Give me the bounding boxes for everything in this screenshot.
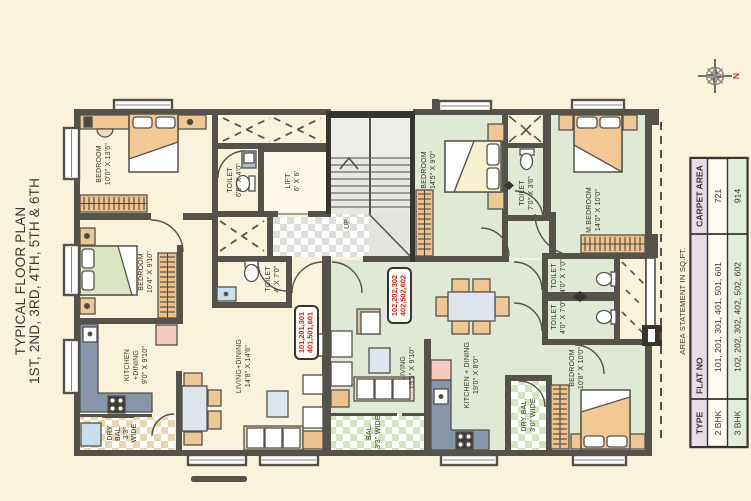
svg-text:AREA STATEMENT IN SQ.FT.: AREA STATEMENT IN SQ.FT.	[678, 247, 687, 354]
svg-text:DRY: DRY	[107, 425, 114, 440]
svg-text:7'0" X 3'6": 7'0" X 3'6"	[528, 176, 535, 210]
svg-text:TYPE: TYPE	[695, 412, 705, 435]
svg-text:4'0" X 7'0": 4'0" X 7'0"	[560, 259, 567, 293]
svg-text:TOILET: TOILET	[265, 266, 272, 292]
svg-text:FLAT NO: FLAT NO	[695, 357, 705, 394]
svg-text:LIFT: LIFT	[285, 173, 292, 189]
svg-text:401,501,601: 401,501,601	[306, 312, 315, 353]
svg-text:DRY BAL.: DRY BAL.	[521, 398, 528, 431]
svg-text:BEDROOM: BEDROOM	[569, 349, 576, 387]
svg-text:10'4" X 9'10": 10'4" X 9'10"	[147, 251, 154, 293]
svg-text:101, 201, 301, 401, 501, 601: 101, 201, 301, 401, 501, 601	[713, 262, 723, 372]
svg-text:19'0" X 8'0": 19'0" X 8'0"	[473, 356, 480, 394]
svg-text:4'0" X 7'0": 4'0" X 7'0"	[560, 300, 567, 334]
svg-text:102, 202, 302, 402, 502, 602: 102, 202, 302, 402, 502, 602	[733, 262, 743, 372]
svg-text:14'8" X 14'6": 14'8" X 14'6"	[245, 345, 252, 387]
svg-text:UP: UP	[344, 219, 351, 229]
svg-text:3 BHK: 3 BHK	[733, 410, 743, 435]
svg-text:10'0" X 13'6": 10'0" X 13'6"	[105, 143, 112, 185]
svg-text:BAL.: BAL.	[115, 425, 122, 441]
svg-text:14'0" X 10'0": 14'0" X 10'0"	[595, 189, 602, 231]
svg-text:BAL.: BAL.	[366, 424, 373, 440]
svg-text:CARPET AREA: CARPET AREA	[695, 165, 705, 227]
svg-text:10'8" X 10'0": 10'8" X 10'0"	[578, 347, 585, 389]
svg-text:TYPICAL FLOOR PLAN: TYPICAL FLOOR PLAN	[13, 207, 28, 356]
svg-text:721: 721	[713, 189, 723, 204]
svg-text:TOILET: TOILET	[519, 180, 526, 206]
svg-text:914: 914	[733, 189, 743, 204]
svg-text:6'5" X 4'0": 6'5" X 4'0"	[236, 163, 243, 197]
svg-text:BEDROOM: BEDROOM	[96, 145, 103, 183]
svg-text:TOILET: TOILET	[227, 167, 234, 193]
svg-text:LIVING+DINING: LIVING+DINING	[236, 339, 243, 393]
svg-text:TOILET: TOILET	[551, 263, 558, 289]
svg-text:2 BHK: 2 BHK	[713, 410, 723, 435]
svg-text:+DINING: +DINING	[133, 350, 140, 380]
svg-text:9'0" X 9'10": 9'0" X 9'10"	[142, 346, 149, 384]
svg-text:BEDROOM: BEDROOM	[138, 253, 145, 291]
svg-text:KITCHEN + DINING: KITCHEN + DINING	[464, 342, 471, 408]
svg-text:WIDE: WIDE	[131, 423, 138, 442]
svg-text:BEDROOM: BEDROOM	[421, 151, 428, 189]
svg-text:TOILET: TOILET	[551, 304, 558, 330]
svg-text:15'5" X 9'10": 15'5" X 9'10"	[409, 347, 416, 389]
svg-text:402,502,602: 402,502,602	[399, 275, 408, 316]
svg-text:4' X 7'0": 4' X 7'0"	[274, 265, 281, 293]
svg-text:6' X 6': 6' X 6'	[294, 171, 301, 191]
svg-text:14'5" X 9'0": 14'5" X 9'0"	[430, 151, 437, 189]
svg-text:3'3": 3'3"	[123, 426, 130, 439]
svg-text:3'3" WIDE: 3'3" WIDE	[375, 415, 382, 449]
svg-text:1ST, 2ND, 3RD, 4TH, 5TH & 6TH: 1ST, 2ND, 3RD, 4TH, 5TH & 6TH	[27, 178, 42, 384]
svg-text:KITCHEN: KITCHEN	[124, 349, 131, 381]
svg-text:N: N	[731, 73, 741, 79]
svg-text:LIVING: LIVING	[400, 356, 407, 380]
svg-text:M.BEDROOM: M.BEDROOM	[586, 187, 593, 233]
svg-text:3'0" WIDE: 3'0" WIDE	[530, 398, 537, 432]
